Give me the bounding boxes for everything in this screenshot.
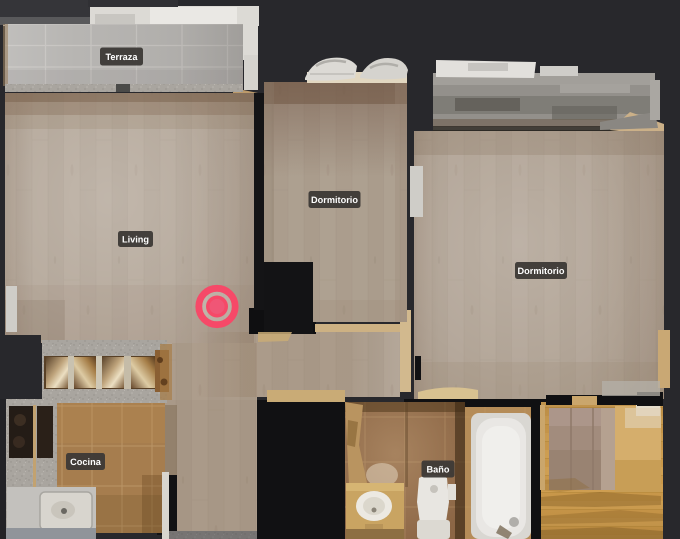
svg-text:Dormitorio: Dormitorio bbox=[311, 195, 358, 205]
svg-text:Living: Living bbox=[122, 235, 149, 245]
svg-text:Terraza: Terraza bbox=[105, 52, 138, 62]
svg-text:Cocina: Cocina bbox=[70, 457, 102, 467]
svg-text:Baño: Baño bbox=[427, 465, 450, 475]
svg-text:Dormitorio: Dormitorio bbox=[518, 266, 565, 276]
